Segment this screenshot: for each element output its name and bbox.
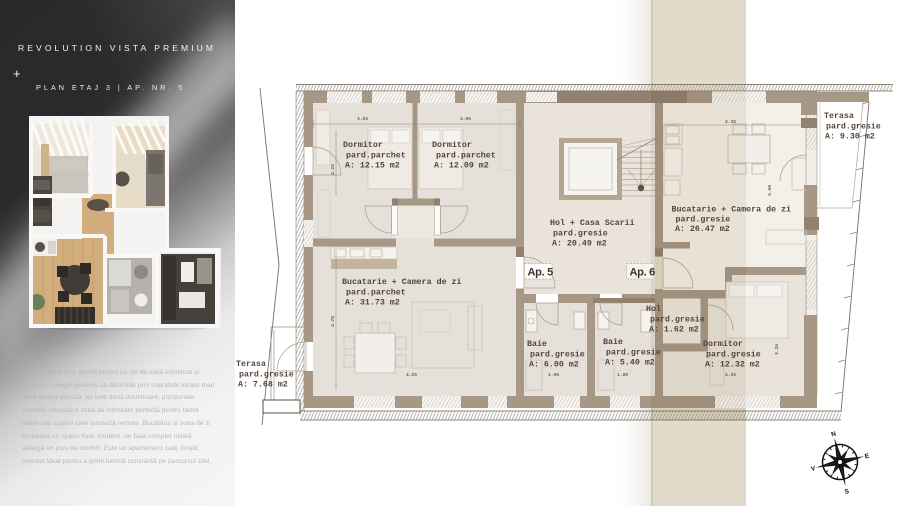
svg-text:Dormitor: Dormitor <box>343 140 383 150</box>
svg-text:Dormitor: Dormitor <box>432 140 472 150</box>
svg-text:Ap. 6: Ap. 6 <box>630 267 656 279</box>
svg-text:3.05: 3.05 <box>460 116 471 122</box>
svg-text:3.60: 3.60 <box>767 185 773 196</box>
svg-text:A: 12.09 m2: A: 12.09 m2 <box>434 162 489 171</box>
svg-text:pard.gresie: pard.gresie <box>650 315 705 325</box>
svg-text:Bucatarie + Camera de zi: Bucatarie + Camera de zi <box>672 205 792 215</box>
svg-text:A: 12.32 m2: A: 12.32 m2 <box>705 361 760 370</box>
svg-text:Terasa: Terasa <box>236 360 266 369</box>
svg-text:A: 26.47 m2: A: 26.47 m2 <box>675 225 730 234</box>
svg-text:E: E <box>864 453 870 461</box>
svg-text:pard.gresie: pard.gresie <box>239 370 294 380</box>
svg-text:pard.parchet: pard.parchet <box>346 288 406 298</box>
svg-text:V: V <box>810 465 816 473</box>
svg-text:pard.parchet: pard.parchet <box>346 151 406 161</box>
svg-text:A: 12.15 m2: A: 12.15 m2 <box>345 162 400 171</box>
svg-text:pard.gresie: pard.gresie <box>606 348 661 358</box>
svg-text:N: N <box>831 431 837 439</box>
svg-text:pard.gresie: pard.gresie <box>553 229 608 239</box>
svg-text:Hol: Hol <box>646 304 661 314</box>
svg-text:pard.parchet: pard.parchet <box>436 151 496 161</box>
svg-text:A: 5.40 m2: A: 5.40 m2 <box>605 359 655 368</box>
svg-text:4.70: 4.70 <box>330 316 336 327</box>
svg-text:Terasa: Terasa <box>824 112 854 121</box>
svg-text:A: 9.30 m2: A: 9.30 m2 <box>825 133 875 142</box>
svg-text:pard.gresie: pard.gresie <box>826 122 881 132</box>
svg-text:1.88: 1.88 <box>617 372 628 378</box>
svg-text:4.35: 4.35 <box>725 372 736 378</box>
svg-text:A: 1.62 m2: A: 1.62 m2 <box>649 326 699 335</box>
svg-text:S: S <box>844 488 850 496</box>
svg-text:Baie: Baie <box>527 339 547 349</box>
svg-text:Ap. 5: Ap. 5 <box>528 267 554 279</box>
svg-text:Hol + Casa Scarii: Hol + Casa Scarii <box>550 218 635 228</box>
svg-text:3.26: 3.26 <box>774 344 780 355</box>
svg-text:Dormitor: Dormitor <box>703 339 743 349</box>
svg-text:Baie: Baie <box>603 337 623 347</box>
svg-text:pard.gresie: pard.gresie <box>706 350 761 360</box>
svg-text:1.98: 1.98 <box>548 372 559 378</box>
svg-text:4.25: 4.25 <box>330 164 336 175</box>
svg-text:3.03: 3.03 <box>357 116 368 122</box>
svg-text:4.35: 4.35 <box>725 119 736 125</box>
svg-text:pard.gresie: pard.gresie <box>676 215 731 225</box>
svg-text:A: 6.00 m2: A: 6.00 m2 <box>529 361 579 370</box>
svg-text:pard.gresie: pard.gresie <box>530 350 585 360</box>
svg-text:A: 31.73 m2: A: 31.73 m2 <box>345 299 400 308</box>
svg-text:A: 20.49 m2: A: 20.49 m2 <box>552 240 607 249</box>
svg-text:Bucatarie + Camera de zi: Bucatarie + Camera de zi <box>342 277 462 287</box>
svg-text:A: 7.68 m2: A: 7.68 m2 <box>238 381 288 390</box>
svg-text:4.25: 4.25 <box>406 372 417 378</box>
